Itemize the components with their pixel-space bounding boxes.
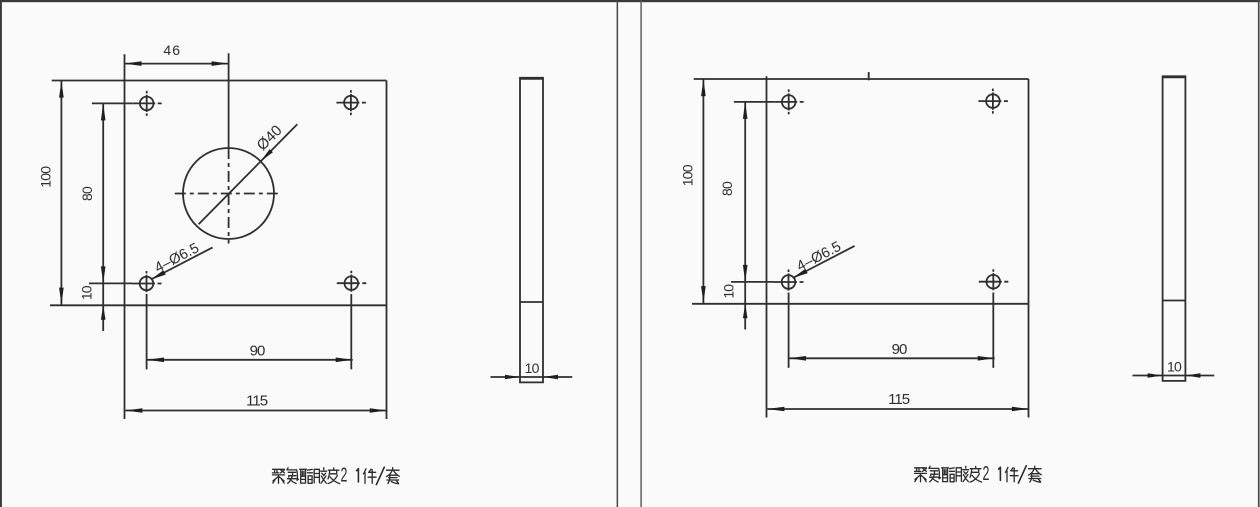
svg-text:10: 10	[525, 360, 540, 376]
svg-text:10: 10	[1167, 358, 1182, 374]
svg-text:115: 115	[888, 391, 910, 408]
svg-text:100: 100	[679, 164, 695, 186]
svg-text:80: 80	[719, 181, 735, 196]
svg-text:90: 90	[250, 342, 265, 359]
svg-text:115: 115	[246, 392, 268, 409]
svg-text:80: 80	[79, 186, 95, 201]
svg-text:100: 100	[37, 166, 53, 188]
svg-text:90: 90	[892, 341, 907, 358]
svg-text:10: 10	[78, 285, 94, 300]
svg-text:10: 10	[720, 284, 736, 299]
svg-text:46: 46	[163, 42, 181, 58]
